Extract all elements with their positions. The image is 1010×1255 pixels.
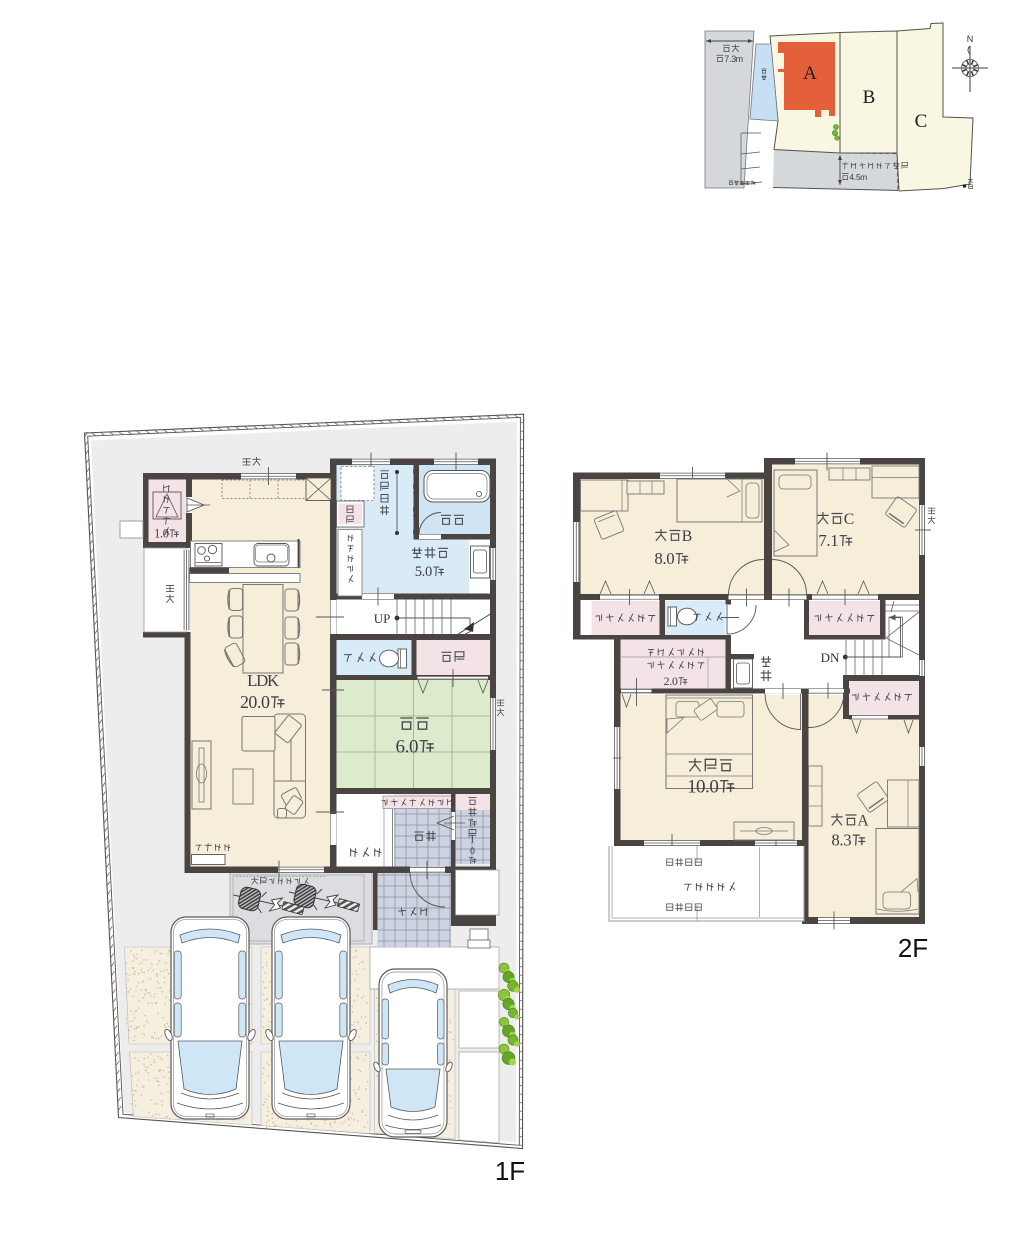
svg-text:C: C	[915, 111, 928, 132]
svg-text:2F: 2F	[898, 933, 928, 963]
svg-text:3: 3	[843, 831, 851, 850]
svg-text:0: 0	[425, 564, 432, 580]
svg-text:0: 0	[261, 692, 270, 712]
svg-text:N: N	[967, 34, 974, 44]
svg-text:0: 0	[666, 549, 674, 568]
svg-text:1F: 1F	[495, 1156, 525, 1186]
svg-text:UP: UP	[374, 611, 391, 626]
svg-text:0: 0	[709, 777, 719, 798]
svg-text:0: 0	[470, 846, 475, 857]
svg-text:K: K	[267, 671, 279, 690]
svg-text:A: A	[803, 63, 817, 84]
svg-text:0: 0	[696, 777, 706, 798]
svg-text:m: m	[860, 172, 867, 182]
svg-text:0: 0	[409, 737, 419, 758]
svg-text:DN: DN	[821, 650, 840, 665]
svg-text:m: m	[736, 54, 744, 64]
svg-text:A: A	[857, 813, 869, 830]
svg-text:6: 6	[396, 737, 406, 758]
svg-text:C: C	[844, 511, 854, 528]
svg-text:B: B	[863, 87, 876, 108]
svg-text:0: 0	[672, 674, 678, 688]
svg-text:0: 0	[163, 527, 169, 541]
svg-text:B: B	[682, 528, 692, 545]
svg-text:1: 1	[830, 531, 838, 550]
